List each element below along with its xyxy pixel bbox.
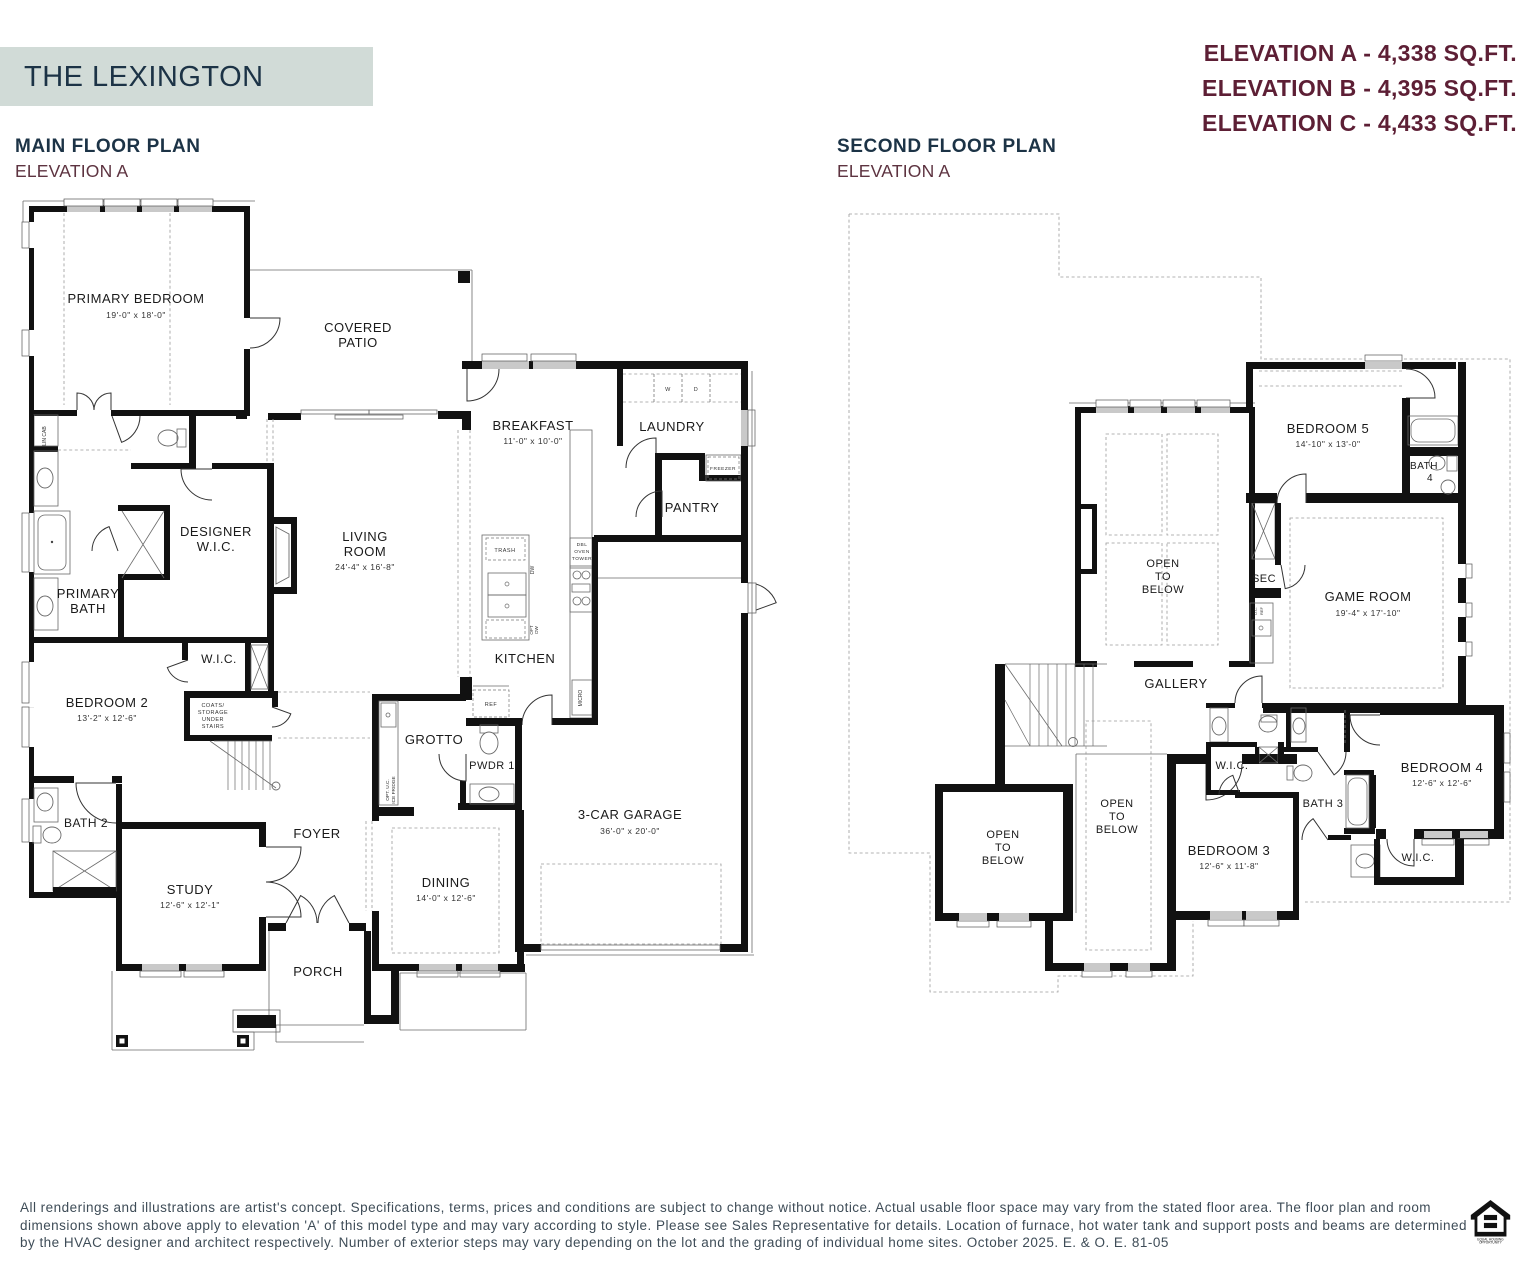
svg-text:STORAGE: STORAGE <box>198 710 228 716</box>
svg-text:DBL: DBL <box>577 542 588 548</box>
svg-text:TO: TO <box>1109 811 1125 823</box>
svg-text:OPT. U.C.: OPT. U.C. <box>385 779 391 801</box>
svg-text:BREAKFAST: BREAKFAST <box>492 418 573 433</box>
svg-text:DW: DW <box>530 566 536 575</box>
svg-text:GAME ROOM: GAME ROOM <box>1325 589 1412 604</box>
svg-text:BELOW: BELOW <box>982 855 1024 867</box>
svg-text:36'-0" x 20'-0": 36'-0" x 20'-0" <box>600 826 660 836</box>
svg-text:U.C.: U.C. <box>1253 607 1258 615</box>
svg-text:REF: REF <box>485 702 498 708</box>
svg-text:FOYER: FOYER <box>293 826 340 841</box>
svg-text:BELOW: BELOW <box>1096 824 1138 836</box>
svg-text:BEDROOM 2: BEDROOM 2 <box>66 695 149 710</box>
svg-text:KITCHEN: KITCHEN <box>495 651 556 666</box>
svg-text:12'-6" x 12'-1": 12'-6" x 12'-1" <box>160 900 220 910</box>
svg-text:PANTRY: PANTRY <box>665 500 720 515</box>
svg-text:LIVING: LIVING <box>342 529 388 544</box>
svg-text:DW: DW <box>534 626 539 634</box>
svg-text:BATH: BATH <box>70 601 106 616</box>
svg-text:ICE FRIDGE: ICE FRIDGE <box>391 776 397 803</box>
svg-text:GROTTO: GROTTO <box>405 732 463 747</box>
svg-text:FREEZER: FREEZER <box>710 466 736 472</box>
svg-text:UNDER: UNDER <box>202 717 224 723</box>
svg-text:DESIGNER: DESIGNER <box>180 524 252 539</box>
svg-text:OPPORTUNITY: OPPORTUNITY <box>1479 1241 1503 1244</box>
svg-text:4: 4 <box>1427 473 1433 484</box>
svg-text:SEC: SEC <box>1252 573 1276 585</box>
svg-text:TOWER: TOWER <box>572 556 592 562</box>
svg-text:BEDROOM 4: BEDROOM 4 <box>1401 760 1484 775</box>
svg-text:TO: TO <box>995 842 1011 854</box>
svg-text:TO: TO <box>1155 571 1171 583</box>
svg-text:OPEN: OPEN <box>1146 558 1179 570</box>
svg-text:14'-0" x 12'-6": 14'-0" x 12'-6" <box>416 893 476 903</box>
svg-text:PRIMARY: PRIMARY <box>57 586 120 601</box>
svg-text:19'-4" x 17'-10": 19'-4" x 17'-10" <box>1335 608 1400 618</box>
svg-text:PRIMARY BEDROOM: PRIMARY BEDROOM <box>67 291 204 306</box>
svg-text:W.I.C.: W.I.C. <box>1402 852 1435 864</box>
svg-text:PORCH: PORCH <box>293 964 342 979</box>
svg-text:14'-10" x 13'-0": 14'-10" x 13'-0" <box>1295 439 1360 449</box>
svg-text:W.I.C.: W.I.C. <box>201 652 237 666</box>
svg-text:BEDROOM 5: BEDROOM 5 <box>1287 421 1370 436</box>
svg-text:COATS/: COATS/ <box>201 703 224 709</box>
svg-text:MICRO: MICRO <box>578 690 584 707</box>
svg-text:BATH: BATH <box>1410 461 1438 472</box>
svg-text:19'-0" x 18'-0": 19'-0" x 18'-0" <box>106 310 166 320</box>
svg-text:BATH 3: BATH 3 <box>1303 798 1344 810</box>
svg-text:OPEN: OPEN <box>986 829 1019 841</box>
svg-text:PATIO: PATIO <box>338 335 378 350</box>
svg-text:D: D <box>694 387 698 393</box>
svg-text:W.I.C.: W.I.C. <box>1216 760 1249 772</box>
svg-text:BATH 2: BATH 2 <box>64 816 108 830</box>
svg-text:W: W <box>665 387 671 393</box>
svg-text:DINING: DINING <box>422 875 471 890</box>
svg-text:11'-0" x 10'-0": 11'-0" x 10'-0" <box>503 436 562 446</box>
svg-text:LAUNDRY: LAUNDRY <box>639 419 704 434</box>
svg-text:BEDROOM 3: BEDROOM 3 <box>1188 843 1271 858</box>
svg-text:REF: REF <box>1259 606 1264 615</box>
svg-text:W.I.C.: W.I.C. <box>197 539 235 554</box>
svg-text:GALLERY: GALLERY <box>1144 676 1207 691</box>
svg-text:STUDY: STUDY <box>167 882 214 897</box>
svg-text:TRASH: TRASH <box>494 548 515 554</box>
svg-text:3-CAR GARAGE: 3-CAR GARAGE <box>578 807 682 822</box>
svg-text:ROOM: ROOM <box>344 544 386 559</box>
svg-text:24'-4" x 16'-8": 24'-4" x 16'-8" <box>335 562 395 572</box>
svg-text:COVERED: COVERED <box>324 320 392 335</box>
svg-text:13'-2" x 12'-6": 13'-2" x 12'-6" <box>77 713 137 723</box>
svg-text:BELOW: BELOW <box>1142 584 1184 596</box>
svg-text:12'-6" x 12'-6": 12'-6" x 12'-6" <box>1412 778 1472 788</box>
svg-text:STAIRS: STAIRS <box>202 724 224 730</box>
svg-text:OPEN: OPEN <box>1100 798 1133 810</box>
svg-text:OVEN: OVEN <box>574 549 590 555</box>
svg-text:12'-6" x 11'-8": 12'-6" x 11'-8" <box>1199 861 1258 871</box>
svg-text:LIN CAB: LIN CAB <box>42 426 48 446</box>
svg-text:PWDR 1: PWDR 1 <box>469 760 515 772</box>
